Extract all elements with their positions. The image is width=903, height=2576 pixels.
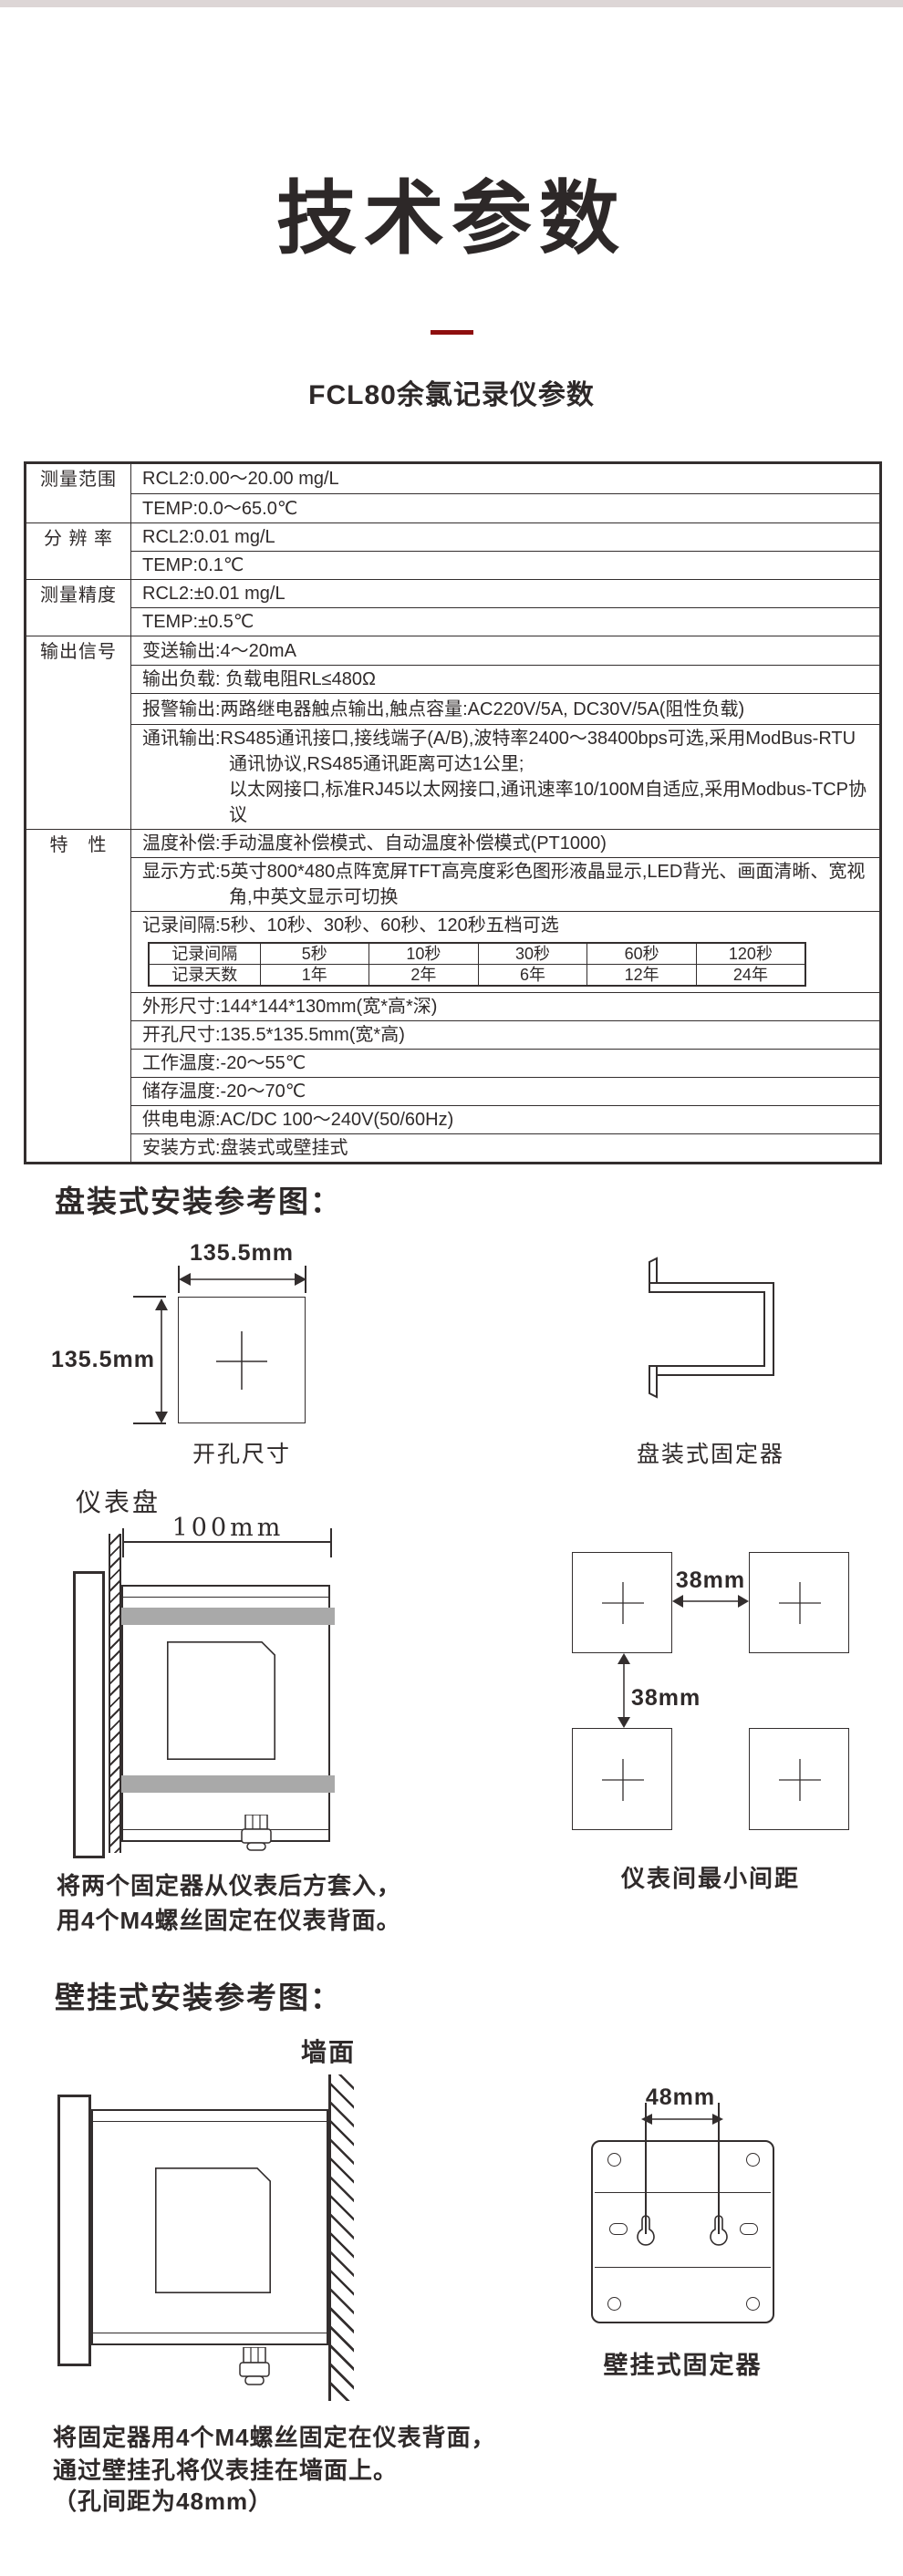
- body-inner-line: [123, 1829, 328, 1830]
- record-cell: 5秒: [260, 943, 369, 965]
- table-row: 储存温度:-20～70℃: [26, 1078, 881, 1106]
- dimension-tick: [122, 1528, 124, 1557]
- wall-section-heading: 壁挂式安装参考图：: [55, 1973, 342, 2017]
- table-row: 供电电源:AC/DC 100～240V(50/60Hz): [26, 1106, 881, 1134]
- panel-section-heading: 盘装式安装参考图：: [55, 1177, 342, 1221]
- record-cell: 120秒: [696, 943, 805, 965]
- table-row: 分 辨 率 RCL2:0.01 mg/L: [26, 523, 881, 552]
- page: 技术参数 FCL80余氯记录仪参数 测量范围 RCL2:0.00～20.00 m…: [0, 0, 903, 2576]
- table-row: 输出信号 变送输出:4～20mA: [26, 636, 881, 666]
- dimension-tick: [178, 1266, 180, 1293]
- instrument-screen: [167, 1641, 275, 1760]
- table-row: 开孔尺寸:135.5*135.5mm(宽*高): [26, 1021, 881, 1050]
- spec-value-line: 角,中英文显示可切换: [142, 885, 872, 910]
- record-cell: 2年: [369, 965, 479, 987]
- dimension-line: [123, 1541, 331, 1543]
- spec-value-line: 记录间隔:5秒、10秒、30秒、60秒、120秒五档可选: [142, 913, 872, 938]
- spec-value: 温度补偿:手动温度补偿模式、自动温度补偿模式(PT1000): [131, 830, 881, 858]
- screw-hole: [607, 2297, 621, 2311]
- dimension-tick: [133, 1296, 166, 1298]
- record-interval-table: 记录间隔 5秒 10秒 30秒 60秒 120秒 记录天数 1年 2年 6年 1…: [148, 942, 806, 987]
- instrument-bezel: [57, 2095, 91, 2366]
- spacing-square: [572, 1552, 672, 1653]
- screw-hole: [746, 2297, 760, 2311]
- table-row: 通讯输出:RS485通讯接口,接线端子(A/B),波特率2400～38400bp…: [26, 725, 881, 830]
- record-cell: 60秒: [587, 943, 697, 965]
- spec-value: 输出负载: 负载电阻RL≤480Ω: [131, 666, 881, 694]
- spacing-square: [749, 1728, 849, 1830]
- record-cell: 12年: [587, 965, 697, 987]
- body-inner-line: [93, 2121, 327, 2122]
- table-row: 显示方式:5英寸800*480点阵宽屏TFT高亮度彩色图形液晶显示,LED背光、…: [26, 858, 881, 912]
- instrument-bezel: [73, 1571, 105, 1858]
- wall-line: [328, 2074, 331, 2401]
- spec-value: 通讯输出:RS485通讯接口,接线端子(A/B),波特率2400～38400bp…: [131, 725, 881, 830]
- depth-label: 100mm: [137, 1514, 319, 1542]
- table-row: TEMP:±0.5℃: [26, 608, 881, 636]
- center-cross-icon: [179, 1298, 306, 1424]
- cable-gland-icon: [236, 2347, 273, 2387]
- wall-label: 墙面: [301, 2033, 356, 2069]
- center-cross-icon: [573, 1553, 673, 1654]
- spec-value: 开孔尺寸:135.5*135.5mm(宽*高): [131, 1021, 881, 1050]
- spec-value: TEMP:±0.5℃: [131, 608, 881, 636]
- spec-value: 安装方式:盘装式或壁挂式: [131, 1134, 881, 1164]
- dimension-arrow-horizontal: [179, 1269, 306, 1289]
- wall-note-line1: 将固定器用4个M4螺丝固定在仪表背面，: [53, 2419, 496, 2453]
- record-cell: 24年: [696, 965, 805, 987]
- panel-hatch: [109, 1534, 121, 1853]
- cutout-height-label: 135.5mm: [44, 1347, 155, 1373]
- spacing-square: [572, 1728, 672, 1830]
- spec-label-measure-range: 测量范围: [26, 463, 131, 523]
- dimension-tick: [305, 1266, 306, 1293]
- plate-divider: [595, 2192, 771, 2193]
- record-cell: 记录间隔: [149, 943, 260, 965]
- spec-value-line: 显示方式:5英寸800*480点阵宽屏TFT高亮度彩色图形液晶显示,LED背光、…: [142, 859, 872, 885]
- dimension-arrow-vertical: [151, 1298, 171, 1423]
- side-slot: [609, 2223, 628, 2235]
- screw-hole: [607, 2153, 621, 2167]
- spacing-caption: 仪表间最小间距: [592, 1860, 829, 1894]
- spec-value: 储存温度:-20～70℃: [131, 1078, 881, 1106]
- side-slot: [740, 2223, 758, 2235]
- mounting-bracket-bottom: [121, 1775, 335, 1793]
- dimension-tick: [133, 1422, 166, 1424]
- spec-label-accuracy: 测量精度: [26, 580, 131, 636]
- record-cell: 记录天数: [149, 965, 260, 987]
- spec-value-line: 通讯协议,RS485通讯距离可达1公里;: [142, 751, 872, 777]
- table-row: 特 性 温度补偿:手动温度补偿模式、自动温度补偿模式(PT1000): [26, 830, 881, 858]
- spacing-arrow-horizontal: [641, 2112, 723, 2126]
- spec-value: 报警输出:两路继电器触点输出,触点容量:AC220V/5A, DC30V/5A(…: [131, 694, 881, 725]
- wall-note-line3: （孔间距为48mm）: [53, 2483, 273, 2517]
- spec-value: 记录间隔:5秒、10秒、30秒、60秒、120秒五档可选 记录间隔 5秒 10秒…: [131, 912, 881, 993]
- hole-spacing-label: 48mm: [637, 2085, 724, 2111]
- record-days-row: 记录天数 1年 2年 6年 12年 24年: [149, 965, 805, 987]
- table-row: 外形尺寸:144*144*130mm(宽*高*深): [26, 993, 881, 1021]
- page-title: 技术参数: [0, 175, 903, 264]
- body-inner-line: [123, 1597, 328, 1598]
- record-cell: 1年: [260, 965, 369, 987]
- panel-fixer-caption: 盘装式固定器: [637, 1436, 784, 1469]
- table-row: 工作温度:-20～55℃: [26, 1050, 881, 1078]
- spec-label-resolution: 分 辨 率: [26, 523, 131, 580]
- cable-gland-icon: [238, 1815, 275, 1853]
- table-row: 记录间隔:5秒、10秒、30秒、60秒、120秒五档可选 记录间隔 5秒 10秒…: [26, 912, 881, 993]
- spec-value: 供电电源:AC/DC 100～240V(50/60Hz): [131, 1106, 881, 1134]
- center-cross-icon: [750, 1729, 850, 1831]
- spec-value: 外形尺寸:144*144*130mm(宽*高*深): [131, 993, 881, 1021]
- spec-label-features: 特 性: [26, 830, 131, 1164]
- wall-hatch: [331, 2074, 354, 2401]
- cutout-caption: 开孔尺寸: [178, 1436, 306, 1469]
- page-subtitle: FCL80余氯记录仪参数: [0, 372, 903, 412]
- v-spacing-label: 38mm: [631, 1685, 701, 1712]
- instrument-screen: [155, 2167, 271, 2293]
- table-row: 输出负载: 负载电阻RL≤480Ω: [26, 666, 881, 694]
- table-row: 测量范围 RCL2:0.00～20.00 mg/L: [26, 463, 881, 494]
- cutout-square: [178, 1297, 306, 1423]
- table-row: TEMP:0.1℃: [26, 552, 881, 580]
- record-cell: 30秒: [478, 943, 587, 965]
- center-cross-icon: [750, 1553, 850, 1654]
- spec-table: 测量范围 RCL2:0.00～20.00 mg/L TEMP:0.0～65.0℃…: [24, 461, 882, 1164]
- spec-value: RCL2:0.00～20.00 mg/L: [131, 463, 881, 494]
- spec-value: TEMP:0.0～65.0℃: [131, 494, 881, 523]
- wall-note-line2: 通过壁挂孔将仪表挂在墙面上。: [53, 2452, 398, 2486]
- screw-hole: [746, 2153, 760, 2167]
- spec-value: 变送输出:4～20mA: [131, 636, 881, 666]
- wall-fixer-caption: 壁挂式固定器: [591, 2345, 774, 2381]
- center-cross-icon: [573, 1729, 673, 1831]
- table-row: 测量精度 RCL2:±0.01 mg/L: [26, 580, 881, 608]
- record-header-row: 记录间隔 5秒 10秒 30秒 60秒 120秒: [149, 943, 805, 965]
- record-cell: 6年: [478, 965, 587, 987]
- spacing-square: [749, 1552, 849, 1653]
- spec-value: RCL2:0.01 mg/L: [131, 523, 881, 552]
- panel-note-line2: 用4个M4螺丝固定在仪表背面。: [57, 1902, 401, 1936]
- table-row: TEMP:0.0～65.0℃: [26, 494, 881, 523]
- spec-value: 工作温度:-20～55℃: [131, 1050, 881, 1078]
- h-spacing-label: 38mm: [672, 1567, 749, 1594]
- top-strip: [0, 0, 903, 7]
- body-inner-line: [93, 2333, 327, 2333]
- spec-value-line: 以太网接口,标准RJ45以太网接口,通讯速率10/100M自适应,采用Modbu…: [142, 777, 872, 828]
- spec-label-output-signal: 输出信号: [26, 636, 131, 830]
- table-row: 报警输出:两路继电器触点输出,触点容量:AC220V/5A, DC30V/5A(…: [26, 694, 881, 725]
- panel-fixer-bracket: [638, 1251, 784, 1402]
- spec-value: RCL2:±0.01 mg/L: [131, 580, 881, 608]
- panel-note-line1: 将两个固定器从仪表后方套入，: [57, 1867, 401, 1901]
- spec-value: 显示方式:5英寸800*480点阵宽屏TFT高亮度彩色图形液晶显示,LED背光、…: [131, 858, 881, 912]
- mounting-bracket-top: [121, 1608, 335, 1625]
- spec-value-line: 通讯输出:RS485通讯接口,接线端子(A/B),波特率2400～38400bp…: [142, 726, 872, 751]
- dimension-tick: [330, 1528, 332, 1557]
- table-row: 安装方式:盘装式或壁挂式: [26, 1134, 881, 1164]
- spec-value: TEMP:0.1℃: [131, 552, 881, 580]
- record-cell: 10秒: [369, 943, 479, 965]
- accent-dash: [431, 330, 473, 335]
- plate-divider: [595, 2267, 771, 2268]
- spacing-arrow-horizontal: [672, 1592, 749, 1610]
- cutout-width-label: 135.5mm: [178, 1240, 306, 1267]
